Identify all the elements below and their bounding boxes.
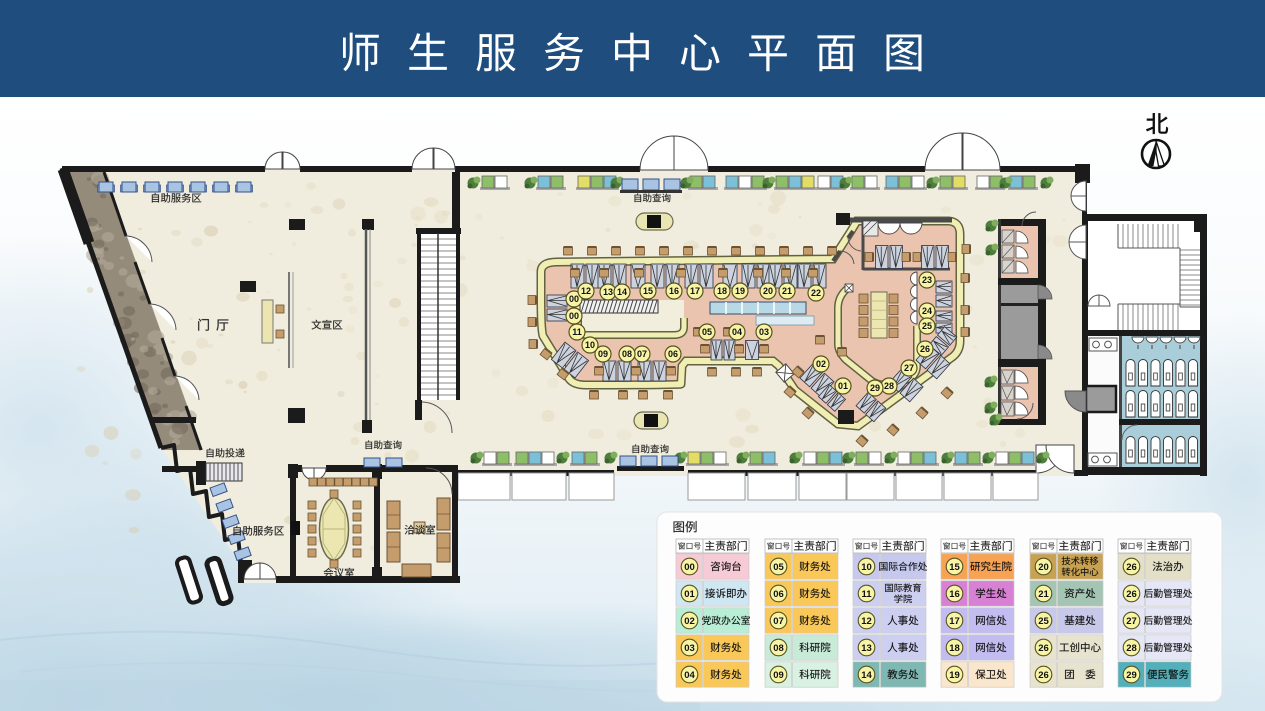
svg-text:02: 02 <box>816 359 826 369</box>
svg-text:20: 20 <box>1038 562 1049 573</box>
svg-text:09: 09 <box>773 670 784 681</box>
svg-text:23: 23 <box>922 275 932 285</box>
svg-text:14: 14 <box>617 287 627 297</box>
svg-text:14: 14 <box>861 670 872 681</box>
svg-text:26: 26 <box>1126 589 1137 600</box>
svg-text:01: 01 <box>684 589 695 600</box>
svg-text:29: 29 <box>870 383 880 393</box>
svg-text:12: 12 <box>861 616 872 627</box>
svg-text:26: 26 <box>920 344 930 354</box>
svg-text:20: 20 <box>763 286 773 296</box>
svg-text:15: 15 <box>949 562 960 573</box>
svg-text:22: 22 <box>811 288 821 298</box>
svg-text:07: 07 <box>637 349 647 359</box>
svg-text:26: 26 <box>1126 562 1137 573</box>
svg-text:00: 00 <box>569 294 579 304</box>
svg-text:27: 27 <box>1126 616 1137 627</box>
svg-text:16: 16 <box>949 589 960 600</box>
svg-text:28: 28 <box>1126 643 1137 654</box>
svg-text:19: 19 <box>949 670 960 681</box>
svg-text:19: 19 <box>735 286 745 296</box>
svg-text:04: 04 <box>732 327 742 337</box>
svg-text:10: 10 <box>861 562 872 573</box>
svg-text:16: 16 <box>669 286 679 296</box>
svg-text:24: 24 <box>922 306 932 316</box>
svg-text:04: 04 <box>684 670 695 681</box>
svg-text:17: 17 <box>690 286 700 296</box>
svg-text:06: 06 <box>773 589 784 600</box>
svg-text:25: 25 <box>1038 616 1049 627</box>
svg-text:17: 17 <box>949 616 960 627</box>
svg-text:05: 05 <box>702 327 712 337</box>
svg-text:25: 25 <box>922 321 932 331</box>
svg-text:09: 09 <box>598 349 608 359</box>
svg-text:11: 11 <box>572 327 582 337</box>
svg-text:15: 15 <box>643 286 653 296</box>
svg-text:08: 08 <box>773 643 784 654</box>
svg-text:01: 01 <box>838 381 848 391</box>
svg-text:00: 00 <box>569 311 579 321</box>
svg-text:18: 18 <box>949 643 960 654</box>
svg-text:28: 28 <box>884 381 894 391</box>
svg-text:18: 18 <box>717 286 727 296</box>
svg-text:13: 13 <box>603 287 613 297</box>
svg-text:02: 02 <box>684 616 695 627</box>
svg-text:11: 11 <box>861 589 872 600</box>
svg-text:07: 07 <box>773 616 784 627</box>
svg-text:03: 03 <box>684 643 695 654</box>
svg-text:10: 10 <box>585 340 595 350</box>
svg-text:12: 12 <box>581 286 591 296</box>
svg-text:27: 27 <box>904 363 914 373</box>
svg-text:21: 21 <box>1038 589 1049 600</box>
svg-text:13: 13 <box>861 643 872 654</box>
svg-text:03: 03 <box>759 327 769 337</box>
svg-text:08: 08 <box>622 349 632 359</box>
svg-text:05: 05 <box>773 562 784 573</box>
svg-text:26: 26 <box>1038 643 1049 654</box>
svg-text:06: 06 <box>668 349 678 359</box>
svg-text:29: 29 <box>1126 670 1137 681</box>
svg-text:00: 00 <box>684 562 695 573</box>
svg-text:26: 26 <box>1038 670 1049 681</box>
svg-text:21: 21 <box>782 286 792 296</box>
